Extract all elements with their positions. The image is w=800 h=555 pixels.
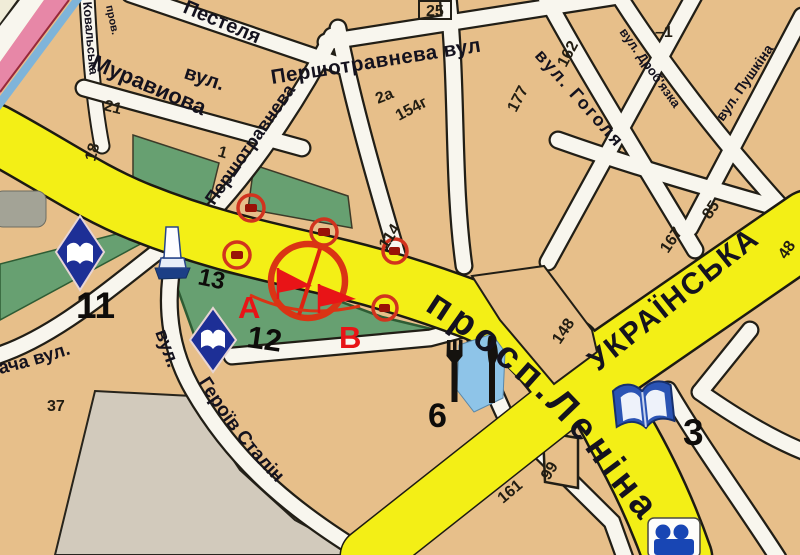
svg-text:25: 25 [426, 3, 444, 20]
svg-text:А: А [238, 290, 260, 325]
svg-text:12: 12 [245, 319, 284, 358]
svg-text:11: 11 [76, 285, 115, 326]
svg-text:13: 13 [196, 263, 228, 295]
svg-text:37: 37 [47, 398, 65, 415]
svg-text:В: В [339, 320, 361, 355]
svg-text:6: 6 [428, 397, 447, 435]
svg-text:–1: –1 [655, 24, 673, 41]
svg-text:3: 3 [683, 412, 704, 453]
